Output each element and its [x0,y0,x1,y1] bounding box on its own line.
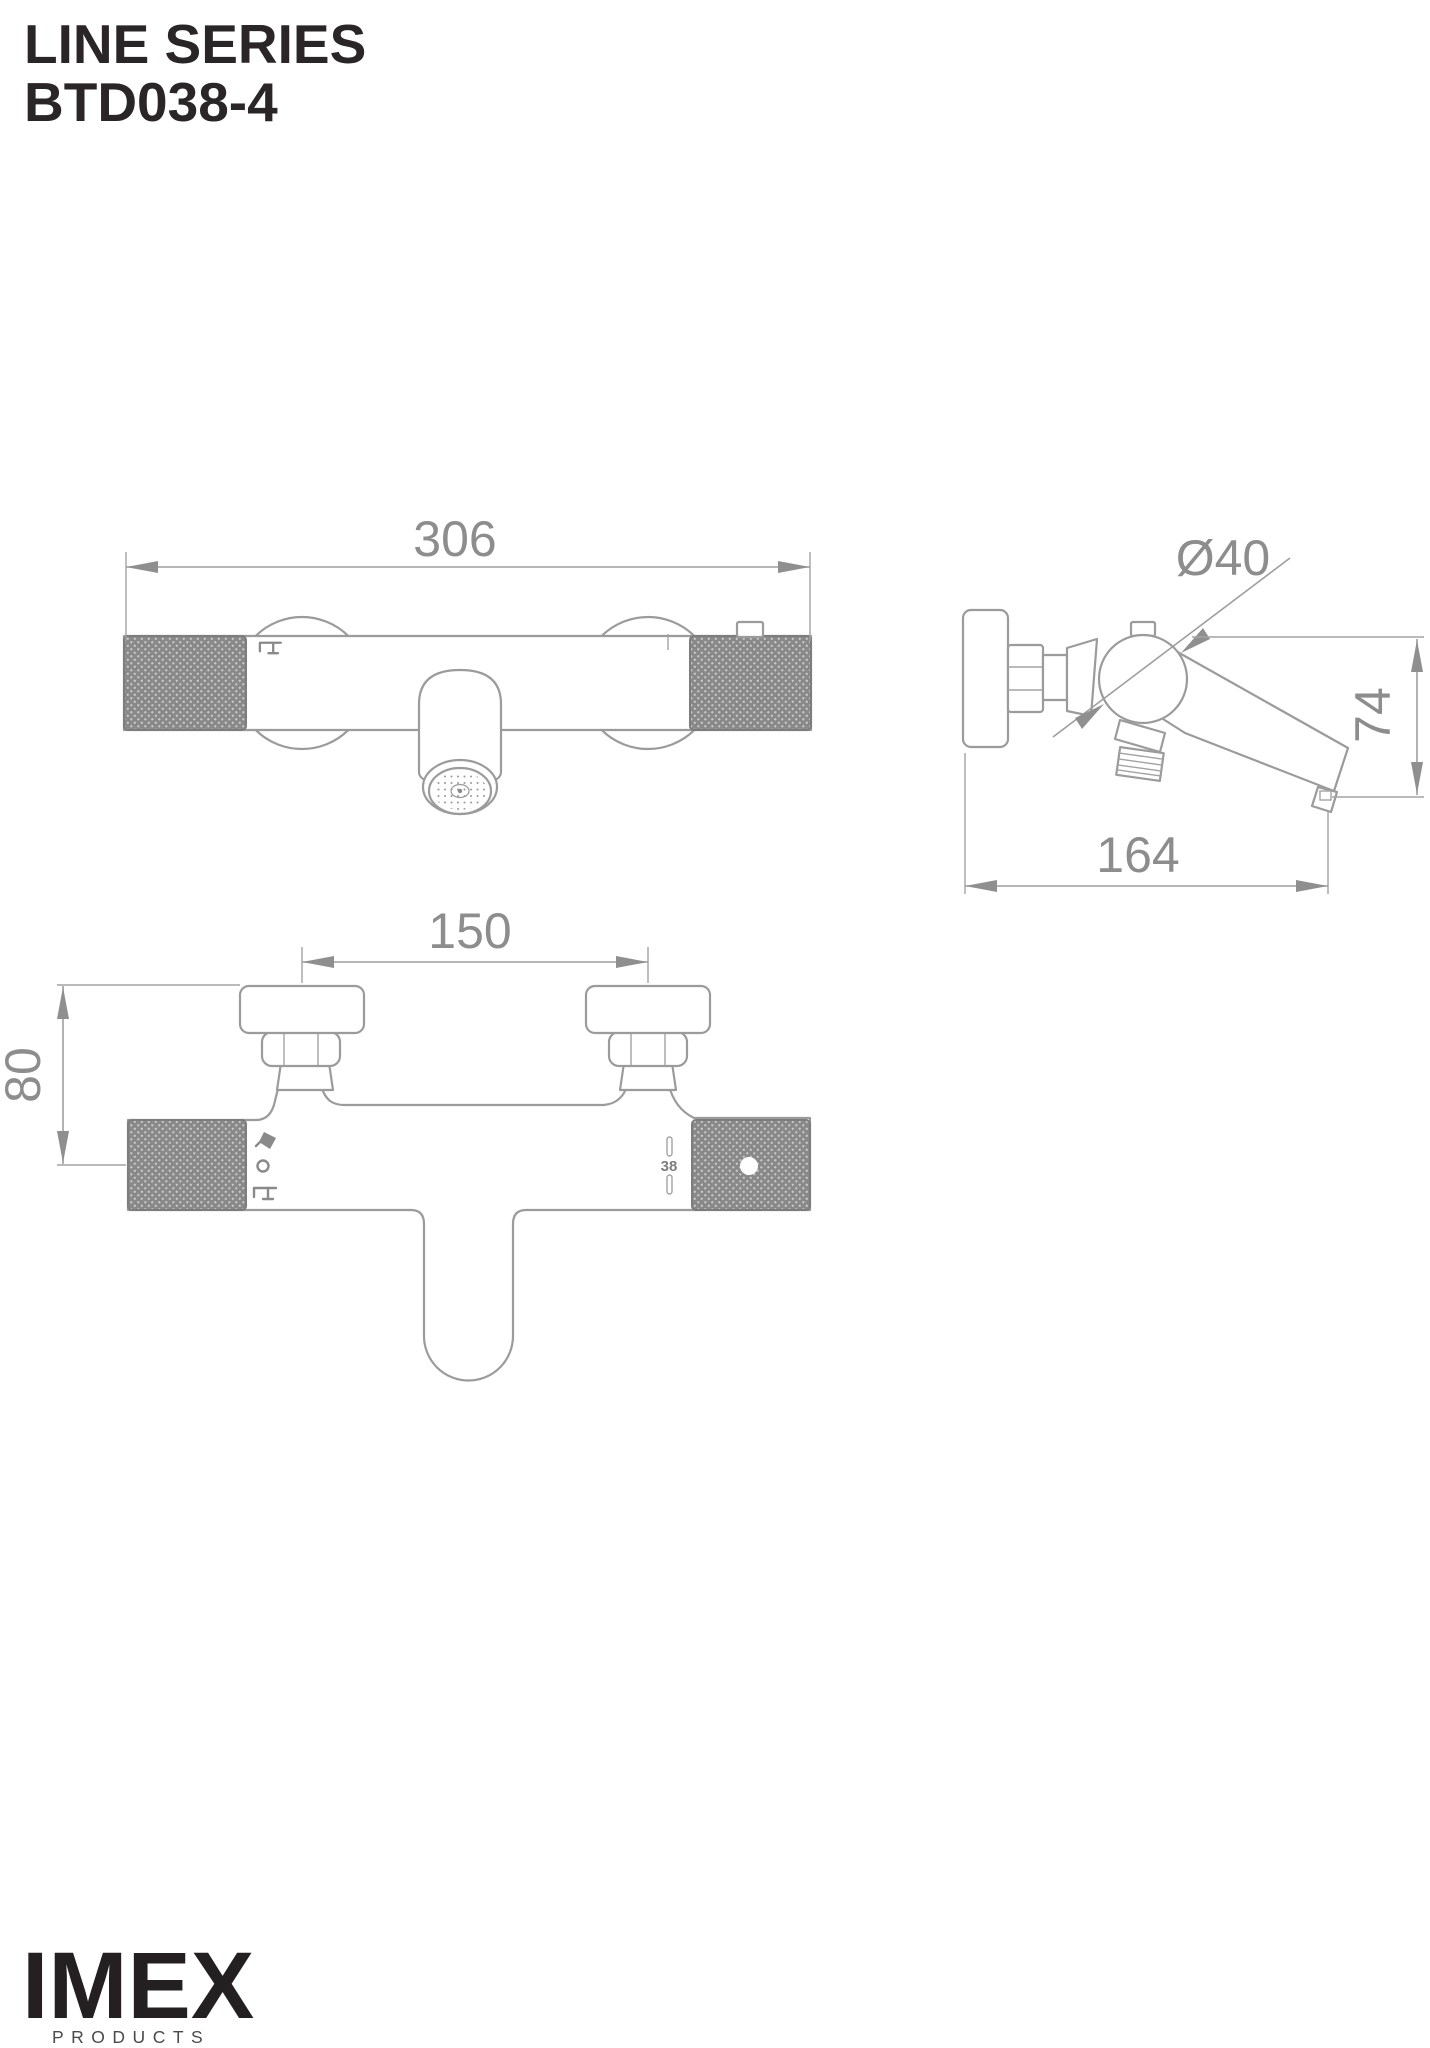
dim-diameter-label: Ø40 [1176,530,1271,586]
left-handle-knurl-front [124,636,246,730]
dim-body-depth-label: 80 [0,1047,51,1103]
dim-width-label: 306 [413,511,496,567]
brand-logo: IMEX PRODUCTS [22,1933,254,2047]
mount-nut-right [609,1032,687,1066]
temp-38-label: 38 [661,1158,678,1175]
dim-spacing-label: 150 [428,903,511,959]
cone-side [1067,639,1097,716]
brand-tagline: PRODUCTS [52,2027,210,2047]
wall-plate-side [963,610,1008,747]
handle-circle-side [1099,635,1187,723]
connector-side [1043,655,1067,700]
dim-spacing: 150 [302,903,648,983]
brand-name: IMEX [22,1933,254,2039]
shower-outlet-thread-side [1116,747,1163,781]
series-title: LINE SERIES [24,13,366,75]
safety-button-front [737,622,763,637]
left-handle-knurl-plan [128,1120,246,1210]
dim-height-label: 74 [1345,687,1401,743]
front-view: 306 [124,511,811,814]
mount-nut-left [262,1032,340,1066]
wall-mount-left [240,986,364,1033]
temp-safety-button [740,1157,758,1175]
dim-depth-label: 164 [1096,827,1179,883]
model-number: BTD038-4 [24,71,278,133]
dim-width: 306 [126,511,810,641]
right-handle-knurl-front [690,636,811,730]
technical-drawing-canvas: LINE SERIES BTD038-4 306 [0,0,1430,2048]
aerator-center [458,789,462,793]
side-view: Ø40 74 164 [963,530,1424,894]
plan-view: 38 150 80 [0,903,810,1381]
mounting-nut-side [1008,645,1043,712]
wall-mount-right [586,986,710,1033]
title-block: LINE SERIES BTD038-4 [24,13,366,133]
